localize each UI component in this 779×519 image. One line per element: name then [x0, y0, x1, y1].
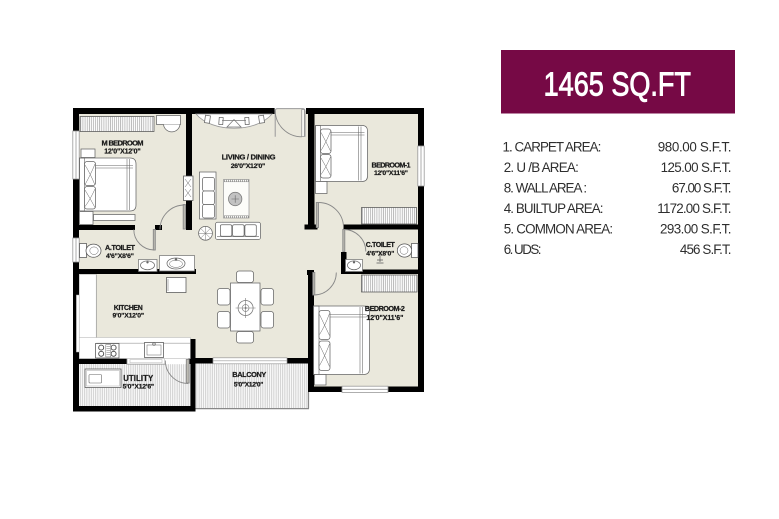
svg-text:456 S.F.T.: 456 S.F.T. [680, 242, 732, 257]
svg-text:980.00 S.F.T.: 980.00 S.F.T. [658, 140, 732, 155]
svg-text:1465 SQ.FT: 1465 SQ.FT [544, 66, 691, 103]
svg-text:6. UDS:: 6. UDS: [504, 242, 542, 257]
svg-text:1. CARPET AREA:: 1. CARPET AREA: [503, 140, 602, 155]
svg-text:8. WALL AREA :: 8. WALL AREA : [504, 181, 587, 196]
svg-text:5. COMMON AREA:: 5. COMMON AREA: [504, 222, 613, 237]
svg-text:293.00 S.F.T.: 293.00 S.F.T. [660, 222, 732, 237]
svg-text:2. U /B AREA:: 2. U /B AREA: [504, 160, 579, 175]
svg-text:4. BUILTUP AREA:: 4. BUILTUP AREA: [504, 201, 604, 216]
svg-text:1172.00 S.F.T.: 1172.00 S.F.T. [657, 201, 731, 216]
svg-text:125.00 S.F.T.: 125.00 S.F.T. [661, 160, 732, 175]
svg-text:67.00 S.F.T.: 67.00 S.F.T. [672, 181, 732, 196]
